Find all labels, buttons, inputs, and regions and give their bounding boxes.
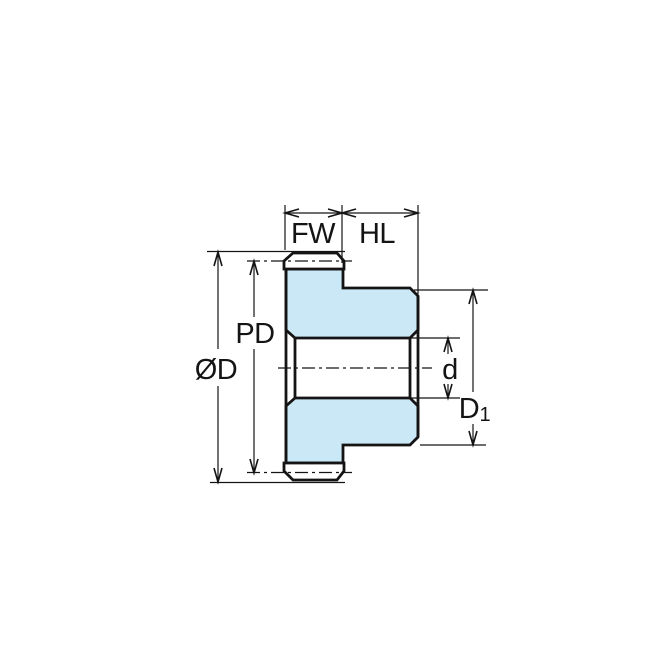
label-fw: FW — [291, 218, 336, 250]
gear-body-upper — [286, 269, 418, 338]
diagram-canvas: FW HL PD ØD d D 1 — [0, 0, 670, 670]
label-hl: HL — [359, 218, 395, 250]
gear-body-lower — [286, 398, 418, 463]
label-pd: PD — [235, 318, 274, 350]
label-d: d — [442, 354, 458, 386]
label-d1: D — [459, 393, 479, 425]
gear-dimension-diagram: FW HL PD ØD d D 1 — [0, 0, 670, 670]
label-d1-subscript: 1 — [479, 404, 490, 426]
label-od: ØD — [195, 354, 238, 386]
tooth-bottom-outline — [284, 463, 344, 480]
